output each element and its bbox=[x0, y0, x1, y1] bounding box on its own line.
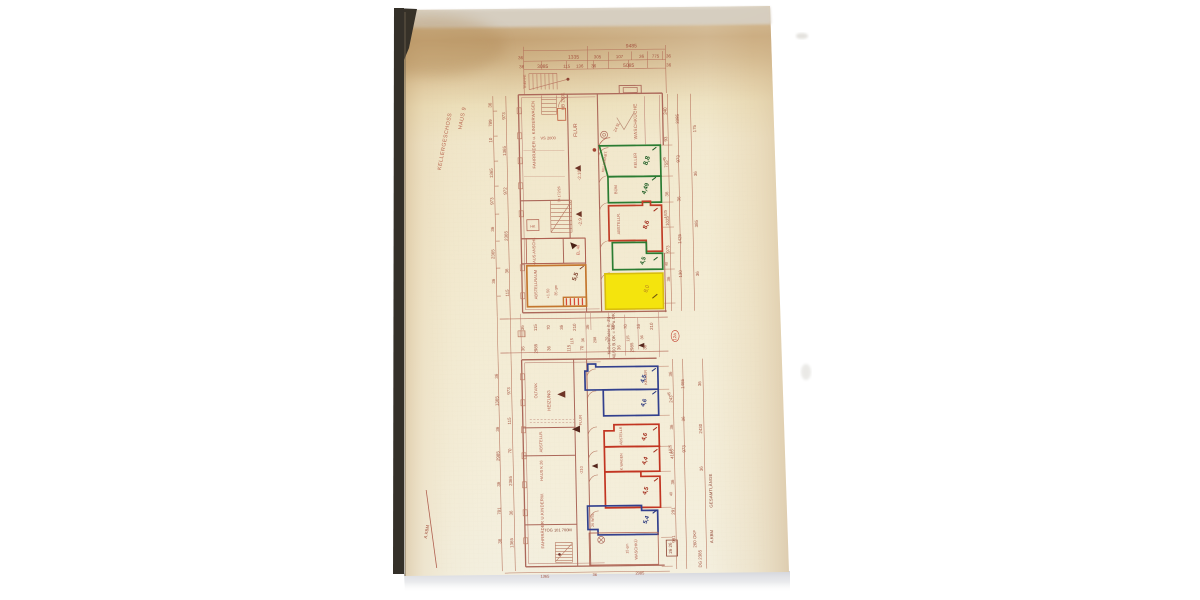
svg-text:36: 36 bbox=[519, 64, 525, 69]
svg-text:HB 2001: HB 2001 bbox=[560, 92, 565, 110]
svg-text:973: 973 bbox=[681, 445, 686, 453]
svg-text:36: 36 bbox=[695, 271, 700, 277]
svg-text:2985: 2985 bbox=[533, 343, 538, 353]
svg-text:973: 973 bbox=[506, 387, 511, 395]
svg-text:36: 36 bbox=[591, 63, 597, 68]
svg-text:36: 36 bbox=[666, 276, 671, 282]
svg-text:DG 2385: DG 2385 bbox=[697, 549, 702, 567]
svg-text:36: 36 bbox=[664, 191, 669, 197]
svg-text:115: 115 bbox=[563, 64, 571, 69]
svg-text:36: 36 bbox=[669, 424, 674, 430]
svg-text:115: 115 bbox=[625, 335, 630, 341]
svg-text:74 172/26: 74 172/26 bbox=[557, 186, 561, 202]
svg-text:1425: 1425 bbox=[677, 233, 682, 243]
svg-text:36: 36 bbox=[497, 538, 502, 544]
svg-text:973: 973 bbox=[665, 245, 670, 253]
svg-text:340: 340 bbox=[663, 107, 668, 115]
svg-text:1365: 1365 bbox=[502, 146, 507, 156]
svg-text:1365: 1365 bbox=[494, 396, 499, 406]
svg-text:TOG 101 700M: TOG 101 700M bbox=[544, 527, 572, 532]
svg-text:ABSTELLR.: ABSTELLR. bbox=[538, 431, 543, 453]
svg-text:36: 36 bbox=[676, 196, 681, 202]
svg-text:1365: 1365 bbox=[509, 538, 514, 548]
svg-text:36: 36 bbox=[509, 510, 514, 516]
svg-text:9485: 9485 bbox=[626, 43, 637, 49]
svg-text:115: 115 bbox=[507, 417, 512, 425]
svg-text:385: 385 bbox=[694, 219, 699, 227]
svg-text:36: 36 bbox=[697, 381, 702, 387]
svg-text:1025: 1025 bbox=[665, 216, 670, 226]
svg-text:36: 36 bbox=[559, 324, 564, 330]
svg-text:36: 36 bbox=[495, 426, 500, 432]
svg-text:36: 36 bbox=[580, 338, 585, 342]
svg-text:VS 2000: VS 2000 bbox=[540, 135, 556, 140]
svg-text:A.KBM: A.KBM bbox=[709, 530, 714, 544]
svg-text:2365: 2365 bbox=[508, 476, 513, 486]
svg-text:26 26: 26 26 bbox=[668, 542, 673, 554]
svg-text:36: 36 bbox=[699, 466, 704, 472]
svg-text:HAUS K 26: HAUS K 26 bbox=[539, 460, 544, 481]
svg-text:981: 981 bbox=[671, 535, 676, 543]
svg-text:36: 36 bbox=[666, 53, 672, 58]
svg-text:755: 755 bbox=[664, 160, 669, 168]
svg-text:36: 36 bbox=[636, 323, 641, 329]
svg-text:2985: 2985 bbox=[635, 570, 645, 575]
svg-text:4185: 4185 bbox=[669, 449, 674, 459]
svg-text:972: 972 bbox=[503, 187, 508, 195]
svg-text:15 qm: 15 qm bbox=[625, 544, 629, 554]
svg-text:789: 789 bbox=[488, 119, 493, 127]
svg-text:1335: 1335 bbox=[568, 55, 579, 61]
svg-text:36: 36 bbox=[666, 62, 672, 67]
svg-text:115: 115 bbox=[569, 338, 574, 344]
svg-text:ÖLTANK: ÖLTANK bbox=[533, 383, 538, 399]
svg-text:175: 175 bbox=[692, 124, 697, 132]
svg-text:36: 36 bbox=[670, 479, 675, 485]
svg-text:115: 115 bbox=[533, 324, 538, 332]
svg-text:775: 775 bbox=[652, 54, 660, 59]
svg-text:36: 36 bbox=[681, 416, 686, 422]
svg-text:973: 973 bbox=[501, 112, 506, 120]
svg-text:107: 107 bbox=[616, 54, 624, 59]
svg-text:WASCHKÜ: WASCHKÜ bbox=[633, 539, 638, 559]
svg-text:130: 130 bbox=[678, 270, 683, 278]
svg-text:36: 36 bbox=[487, 102, 492, 108]
svg-text:3085: 3085 bbox=[537, 64, 548, 70]
svg-text:70: 70 bbox=[579, 345, 584, 351]
svg-text:115: 115 bbox=[505, 289, 510, 297]
svg-text:70: 70 bbox=[546, 324, 551, 330]
svg-text:2985: 2985 bbox=[495, 451, 500, 461]
svg-text:KELLER: KELLER bbox=[632, 153, 637, 169]
svg-text:36: 36 bbox=[494, 373, 499, 379]
svg-text:36: 36 bbox=[518, 55, 524, 60]
svg-text:70: 70 bbox=[507, 448, 512, 454]
svg-text:1365: 1365 bbox=[540, 574, 550, 579]
svg-text:5085: 5085 bbox=[623, 63, 634, 69]
svg-text:2365: 2365 bbox=[490, 249, 495, 259]
svg-text:GESAMTLÄNGE: GESAMTLÄNGE bbox=[708, 474, 714, 508]
svg-text:36: 36 bbox=[496, 481, 501, 487]
svg-text:36: 36 bbox=[616, 345, 621, 351]
svg-text:36: 36 bbox=[668, 371, 673, 377]
svg-text:291: 291 bbox=[671, 507, 676, 515]
svg-text:+1.50: +1.50 bbox=[546, 289, 550, 299]
svg-text:136: 136 bbox=[576, 64, 584, 69]
svg-text:HK: HK bbox=[530, 225, 536, 229]
svg-text:10: 10 bbox=[488, 137, 493, 143]
svg-text:243: 243 bbox=[668, 395, 673, 403]
svg-text:40: 40 bbox=[669, 492, 673, 496]
svg-text:WASCHKÜCHE: WASCHKÜCHE bbox=[631, 103, 638, 139]
svg-text:HEIZUNG: HEIZUNG bbox=[546, 390, 551, 411]
svg-text:2430: 2430 bbox=[698, 423, 703, 433]
svg-text:EL 40: EL 40 bbox=[575, 244, 580, 255]
svg-text:-2.10: -2.10 bbox=[577, 169, 582, 180]
svg-text:HAUS ANSCHL: HAUS ANSCHL bbox=[531, 237, 537, 266]
svg-text:210: 210 bbox=[572, 323, 577, 331]
svg-text:36: 36 bbox=[490, 226, 495, 232]
svg-text:ABSTELLRAUM: ABSTELLRAUM bbox=[533, 270, 539, 299]
svg-text:973: 973 bbox=[676, 155, 681, 163]
svg-text:1465: 1465 bbox=[680, 378, 685, 388]
svg-text:TREPPE: TREPPE bbox=[523, 74, 527, 89]
svg-text:70: 70 bbox=[623, 324, 628, 330]
svg-text:36: 36 bbox=[546, 345, 551, 351]
svg-text:115: 115 bbox=[566, 344, 571, 352]
svg-text:298: 298 bbox=[592, 337, 597, 344]
svg-text:36: 36 bbox=[642, 344, 647, 350]
svg-text:305: 305 bbox=[594, 54, 602, 59]
svg-text:FLUR: FLUR bbox=[578, 415, 583, 426]
svg-text:35 qm: 35 qm bbox=[554, 285, 558, 296]
svg-text:12a: 12a bbox=[672, 333, 677, 341]
svg-text:260 OKF: 260 OKF bbox=[692, 530, 697, 548]
svg-text:36: 36 bbox=[639, 54, 645, 59]
svg-text:973: 973 bbox=[489, 197, 494, 205]
svg-text:36: 36 bbox=[639, 335, 644, 339]
svg-text:36: 36 bbox=[491, 278, 496, 284]
svg-text:40: 40 bbox=[665, 262, 669, 266]
svg-text:K.WAGEN: K.WAGEN bbox=[619, 453, 623, 470]
svg-text:ABSTELLR.: ABSTELLR. bbox=[616, 213, 621, 235]
svg-text:1365: 1365 bbox=[489, 168, 494, 178]
svg-text:ABSTELLR: ABSTELLR bbox=[619, 426, 623, 445]
svg-text:2365: 2365 bbox=[503, 231, 508, 241]
svg-text:BÜM: BÜM bbox=[613, 185, 618, 194]
svg-text:781: 781 bbox=[497, 507, 502, 515]
svg-text:-2.9: -2.9 bbox=[578, 218, 583, 226]
svg-text:3385: 3385 bbox=[675, 113, 680, 123]
svg-text:36: 36 bbox=[693, 171, 698, 177]
svg-text:210: 210 bbox=[649, 322, 654, 330]
svg-text:26 W/SL: 26 W/SL bbox=[591, 513, 595, 527]
svg-text:-210: -210 bbox=[579, 465, 584, 474]
svg-text:FLUR: FLUR bbox=[573, 123, 579, 137]
svg-text:93: 93 bbox=[663, 136, 668, 142]
svg-text:36: 36 bbox=[504, 268, 509, 274]
svg-text:2985: 2985 bbox=[629, 342, 634, 352]
